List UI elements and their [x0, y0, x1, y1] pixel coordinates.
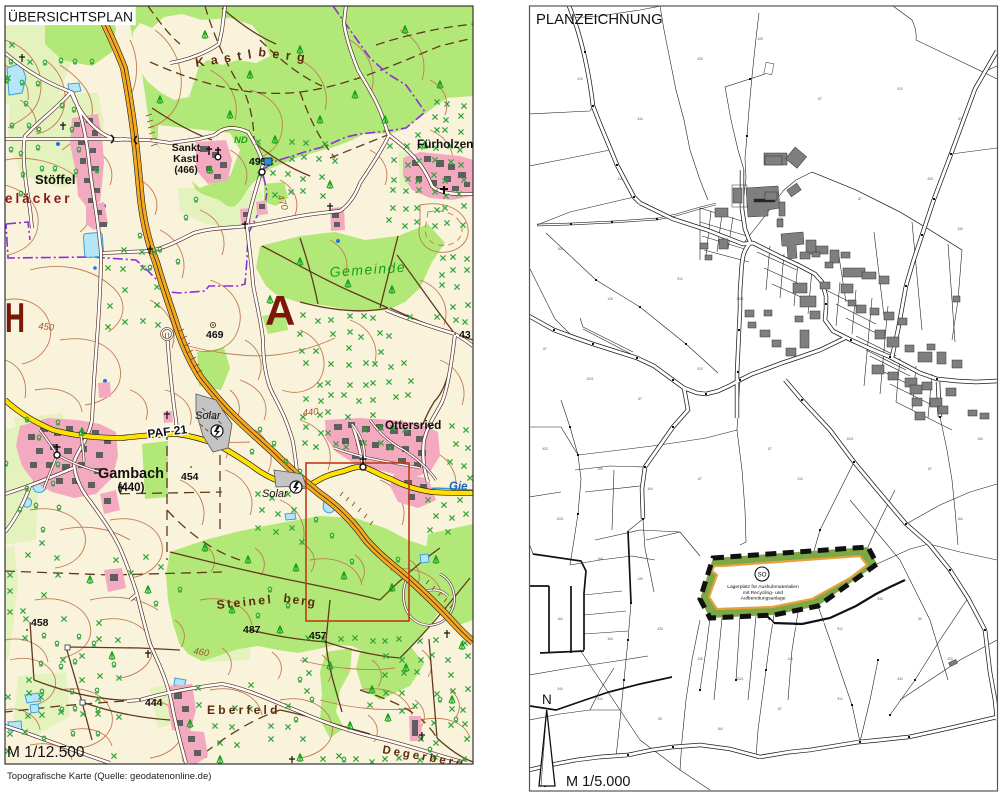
svg-text:912: 912: [597, 697, 603, 701]
svg-text:433: 433: [927, 177, 933, 181]
svg-text:433: 433: [657, 627, 663, 631]
svg-text:87: 87: [638, 397, 642, 401]
svg-text:Solar: Solar: [195, 410, 222, 422]
svg-text:mit Recycling- und: mit Recycling- und: [743, 590, 784, 596]
svg-text:912: 912: [697, 367, 703, 371]
svg-text:87: 87: [768, 447, 772, 451]
svg-text:1021: 1021: [736, 297, 743, 301]
svg-text:126: 126: [607, 297, 613, 301]
svg-text:87: 87: [818, 97, 822, 101]
svg-text:164: 164: [957, 517, 963, 521]
svg-text:433: 433: [542, 447, 548, 451]
svg-text:912: 912: [837, 697, 843, 701]
svg-text:433: 433: [947, 657, 953, 661]
svg-text:Kastl: Kastl: [173, 153, 199, 165]
svg-text:Eberfeld: Eberfeld: [207, 703, 281, 717]
svg-text:87: 87: [698, 477, 702, 481]
svg-text:487: 487: [243, 624, 261, 636]
svg-text:ÜBERSICHTSPLAN: ÜBERSICHTSPLAN: [8, 8, 133, 25]
svg-text:164: 164: [607, 637, 613, 641]
svg-text:460: 460: [193, 646, 211, 659]
svg-text:164: 164: [597, 557, 603, 561]
svg-text:210: 210: [797, 477, 803, 481]
svg-text:87: 87: [778, 707, 782, 711]
svg-text:87: 87: [858, 197, 862, 201]
svg-text:Gie: Gie: [449, 481, 468, 493]
svg-text:210: 210: [617, 177, 623, 181]
svg-text:1021: 1021: [736, 677, 743, 681]
svg-text:N: N: [542, 692, 552, 707]
svg-text:Stöffel: Stöffel: [35, 172, 75, 187]
svg-text:469: 469: [206, 329, 224, 341]
svg-text:454: 454: [181, 471, 199, 483]
svg-text:450: 450: [38, 321, 56, 334]
svg-text:87: 87: [958, 117, 962, 121]
svg-text:87: 87: [543, 347, 547, 351]
svg-text:126: 126: [787, 657, 793, 661]
svg-text:M 1/5.000: M 1/5.000: [566, 774, 631, 790]
svg-text:912: 912: [897, 87, 903, 91]
svg-text:Solar: Solar: [262, 488, 289, 500]
svg-text:1021: 1021: [586, 377, 593, 381]
svg-text:457: 457: [309, 630, 327, 642]
svg-text:440: 440: [302, 406, 320, 419]
svg-text:210: 210: [577, 77, 583, 81]
svg-text:ND: ND: [234, 135, 248, 146]
svg-text:1021: 1021: [846, 437, 853, 441]
svg-text:126: 126: [777, 217, 783, 221]
svg-text:Fürholzen: Fürholzen: [417, 137, 473, 151]
svg-text:164: 164: [647, 487, 653, 491]
svg-text:344: 344: [637, 117, 643, 121]
svg-text:458: 458: [31, 617, 49, 629]
svg-text:344: 344: [877, 597, 883, 601]
svg-text:1021: 1021: [556, 517, 563, 521]
svg-text:55: 55: [918, 617, 922, 621]
svg-text:164: 164: [557, 247, 563, 251]
svg-text:Topografische Karte (Quelle: g: Topografische Karte (Quelle: geodatenonl…: [7, 771, 211, 782]
svg-text:344: 344: [897, 677, 903, 681]
svg-text:164: 164: [977, 437, 983, 441]
svg-text:444: 444: [145, 697, 163, 709]
svg-text:Gambach: Gambach: [98, 466, 164, 482]
svg-text:126: 126: [597, 467, 603, 471]
svg-text:87: 87: [928, 467, 932, 471]
svg-text:433: 433: [957, 227, 963, 231]
svg-text:(466): (466): [174, 165, 197, 176]
svg-text:Ottersried: Ottersried: [385, 418, 441, 432]
svg-text:H: H: [5, 294, 25, 341]
svg-text:55: 55: [658, 717, 662, 721]
svg-text:A: A: [265, 287, 295, 334]
svg-text:Lagerplatz für Aushubmateriali: Lagerplatz für Aushubmaterialien: [727, 584, 799, 590]
svg-text:912: 912: [837, 627, 843, 631]
svg-text:126: 126: [757, 37, 763, 41]
svg-text:164: 164: [717, 727, 723, 731]
svg-text:126: 126: [697, 657, 703, 661]
svg-text:M 1/12.500: M 1/12.500: [7, 744, 85, 761]
svg-text:164: 164: [557, 617, 563, 621]
svg-text:PLANZEICHNUNG: PLANZEICHNUNG: [536, 12, 663, 28]
svg-text:433: 433: [697, 57, 703, 61]
svg-text:912: 912: [677, 277, 683, 281]
svg-text:43: 43: [459, 329, 471, 341]
svg-text:Aufbereitungsanlage: Aufbereitungsanlage: [741, 596, 786, 602]
svg-text:344: 344: [557, 687, 563, 691]
svg-text:126: 126: [637, 577, 643, 581]
svg-text:(440): (440): [118, 482, 145, 494]
svg-text:SO: SO: [757, 572, 766, 579]
svg-text:eläcker: eläcker: [5, 191, 73, 206]
